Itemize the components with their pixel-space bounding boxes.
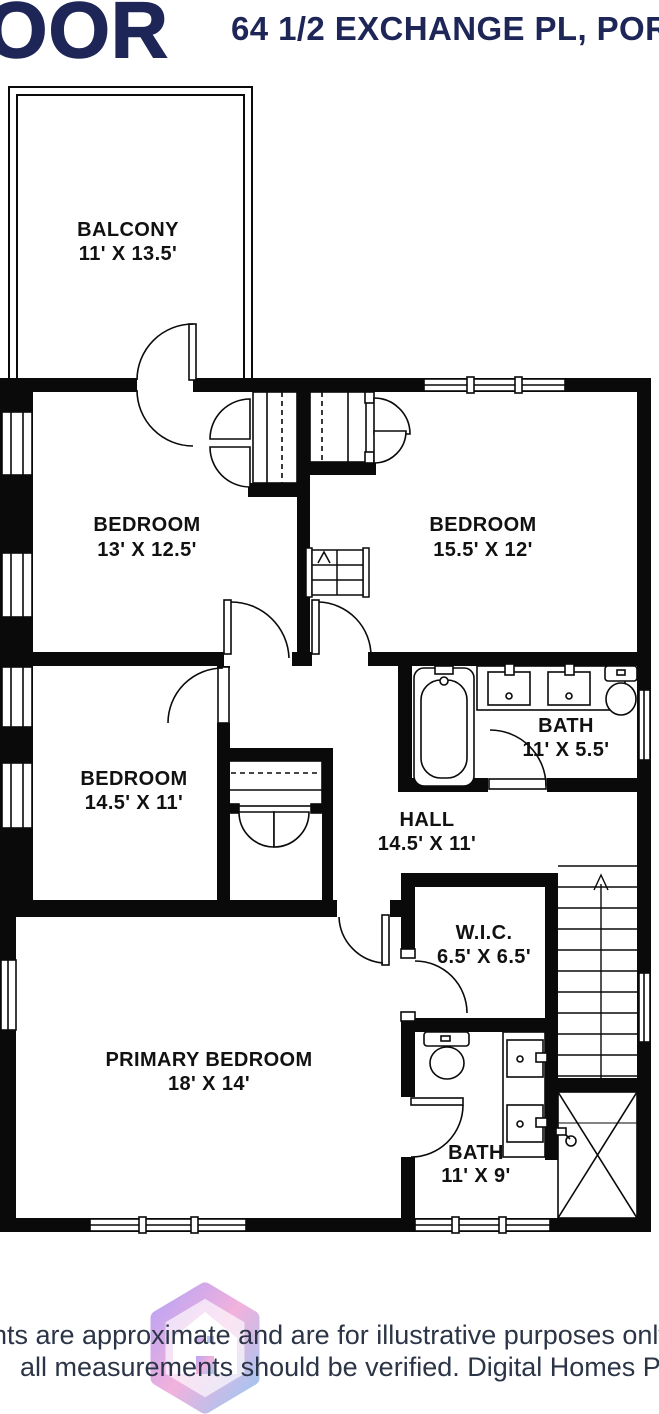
label-bedroom-13: BEDROOM — [93, 514, 200, 536]
window-bottom-primary — [90, 1217, 246, 1233]
footer: nts are approximate and are for illustra… — [0, 1285, 659, 1411]
dims-bath-2: 11' X 9' — [441, 1165, 510, 1187]
label-hall: HALL — [400, 809, 455, 831]
door-primary-bedroom — [339, 915, 389, 965]
dims-bath-1: 11' X 5.5' — [523, 739, 610, 761]
shower — [556, 1092, 637, 1218]
door-bedroom-13 — [224, 600, 289, 658]
label-bath-1: BATH — [538, 715, 594, 737]
door-bedroom-14 — [168, 667, 229, 723]
window-right-stairs — [639, 973, 650, 1042]
window-top — [424, 377, 565, 393]
dims-balcony: 11' X 13.5' — [79, 243, 177, 265]
label-primary-bedroom: PRIMARY BEDROOM — [105, 1049, 312, 1071]
attic-stairs — [306, 548, 369, 597]
dims-bedroom-15: 15.5' X 12' — [433, 539, 533, 561]
dims-hall: 14.5' X 11' — [378, 833, 476, 855]
closet-hall — [229, 761, 322, 813]
floor-plan-page: OOR 64 1/2 EXCHANGE PL, PORT — [0, 0, 659, 1414]
header: OOR 64 1/2 EXCHANGE PL, PORT — [0, 0, 659, 74]
label-bath-2: BATH — [448, 1142, 504, 1164]
floor-title: OOR — [0, 0, 169, 74]
label-bedroom-14: BEDROOM — [80, 768, 187, 790]
bath1-fixtures — [414, 664, 637, 786]
window-left-3 — [2, 667, 32, 727]
window-bottom-bath — [415, 1217, 550, 1233]
dims-bedroom-14: 14.5' X 11' — [85, 792, 183, 814]
label-bedroom-15: BEDROOM — [429, 514, 536, 536]
door-closet-bedroom-15 — [374, 398, 410, 463]
label-wic: W.I.C. — [456, 922, 513, 944]
window-left-2 — [2, 553, 32, 617]
door-bifold-hall-closet — [239, 812, 309, 847]
toilet-bath2 — [424, 1032, 469, 1079]
dims-bedroom-13: 13' X 12.5' — [97, 539, 197, 561]
vanity-double-sink — [477, 664, 625, 710]
door-bedroom-15 — [312, 600, 371, 656]
bathtub — [414, 666, 474, 786]
door-openings — [137, 378, 547, 1157]
vanity-bath2 — [503, 1032, 547, 1157]
window-left-4 — [2, 763, 32, 828]
address-title: 64 1/2 EXCHANGE PL, PORT — [231, 10, 659, 47]
shower-head-icon — [556, 1128, 566, 1135]
closet-bedroom-13 — [253, 392, 297, 483]
door-closet-bedroom-13 — [210, 399, 250, 487]
label-balcony: BALCONY — [77, 219, 179, 241]
toilet-bath1 — [605, 666, 637, 715]
window-left-1 — [2, 412, 32, 475]
doors — [137, 324, 546, 1157]
closet-bedroom-15 — [310, 392, 374, 463]
window-right-bath — [639, 690, 650, 760]
disclaimer-line-1: nts are approximate and are for illustra… — [0, 1320, 659, 1350]
staircase — [558, 866, 637, 1078]
dims-primary-bedroom: 18' X 14' — [168, 1073, 250, 1095]
bath2-fixtures — [424, 1032, 637, 1218]
disclaimer-line-2: all measurements should be verified. Dig… — [20, 1352, 659, 1382]
window-left-5 — [1, 960, 16, 1030]
dims-wic: 6.5' X 6.5' — [437, 946, 531, 968]
